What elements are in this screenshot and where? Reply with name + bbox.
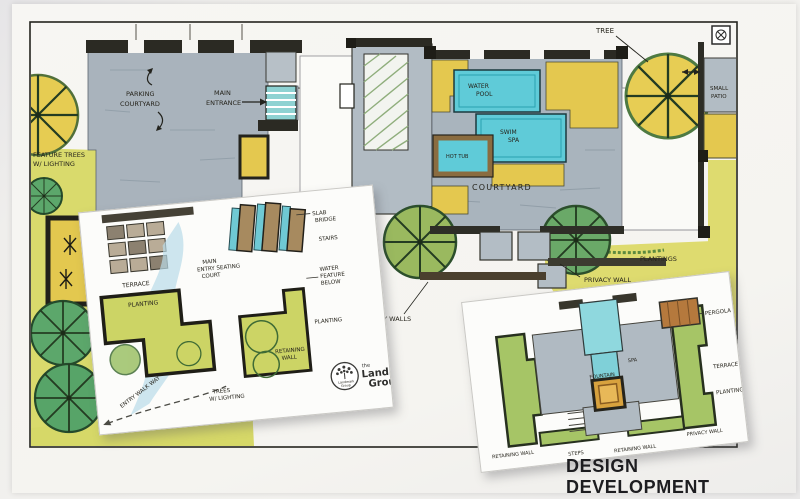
planter <box>238 289 311 377</box>
column <box>340 84 354 108</box>
label-planting: PLANTING <box>314 317 342 326</box>
svg-text:POOL: POOL <box>476 91 493 98</box>
label-pergola: PERGOLA <box>705 308 732 317</box>
svg-text:BRIDGE: BRIDGE <box>315 216 337 224</box>
label-courtyard: COURTYARD <box>472 183 532 192</box>
paver <box>518 232 550 260</box>
label-retaining-wall: RETAINING WALL <box>492 450 535 461</box>
planting-bed <box>704 114 737 158</box>
svg-text:COURTYARD: COURTYARD <box>120 100 160 108</box>
label-spa: SPA <box>628 357 638 364</box>
paver <box>480 232 512 260</box>
label-hot-tub: HOT TUB <box>446 154 469 160</box>
label-feature-trees: FEATURE TREES <box>33 151 85 159</box>
label-stairs: STAIRS <box>318 235 338 243</box>
caption-design-development: DESIGN DEVELOPMENT <box>566 456 766 498</box>
label-small-patio: SMALL <box>710 86 729 92</box>
svg-text:SPA: SPA <box>508 137 520 144</box>
inset-card-courtyard-sketch: PERGOLA TERRACE PLANTING RETAINING WALL … <box>461 271 749 473</box>
water-pool <box>454 70 540 112</box>
small-patio-paving <box>704 58 737 112</box>
label-terrace: TERRACE <box>712 362 739 371</box>
label-skylight: SKYLIGHT <box>398 13 433 21</box>
landmark-logo: Landmark Group the Landmark Group <box>330 356 393 394</box>
paver-grid <box>107 221 168 273</box>
label-plantings: PLANTINGS <box>640 255 677 263</box>
label-terrace: TERRACE <box>121 280 150 290</box>
label-tree: TREE <box>595 27 614 35</box>
svg-text:W/ LIGHTING: W/ LIGHTING <box>33 160 75 168</box>
svg-text:PATIO: PATIO <box>711 94 727 100</box>
slab-bridge <box>229 200 306 256</box>
inset-card-entry-sketch: TERRACE PLANTING MAIN ENTRY SEATING COUR… <box>78 185 394 436</box>
label-parking: PARKING <box>126 90 155 98</box>
entry-sketch: TERRACE PLANTING MAIN ENTRY SEATING COUR… <box>79 186 393 435</box>
label-privacy-wall: PRIVACY WALL <box>686 428 723 438</box>
building-wall <box>86 24 302 53</box>
water-channel <box>579 299 623 355</box>
courtyard-sketch: PERGOLA TERRACE PLANTING RETAINING WALL … <box>462 272 748 472</box>
label-planting: PLANTING <box>716 387 744 396</box>
photo-of-design-board: PARKING COURTYARD MAIN ENTRANCE FEATURE … <box>0 0 800 499</box>
svg-text:BELOW: BELOW <box>321 279 342 287</box>
label-water-pool: WATER <box>468 83 489 90</box>
svg-text:FEATURE: FEATURE <box>320 272 346 280</box>
svg-text:Group: Group <box>368 376 393 390</box>
skylight-panel <box>364 54 408 150</box>
label-swim-spa: SWIM <box>500 129 517 136</box>
wall-segment <box>101 207 193 224</box>
svg-text:COURT: COURT <box>201 272 221 280</box>
planting-bed <box>240 136 268 178</box>
svg-text:ENTRANCE: ENTRANCE <box>206 99 241 107</box>
bush-icon <box>109 343 142 376</box>
privacy-wall <box>420 272 546 280</box>
label-main-entrance: MAIN <box>214 89 231 97</box>
label-retaining-wall: RETAINING WALL <box>614 444 657 455</box>
